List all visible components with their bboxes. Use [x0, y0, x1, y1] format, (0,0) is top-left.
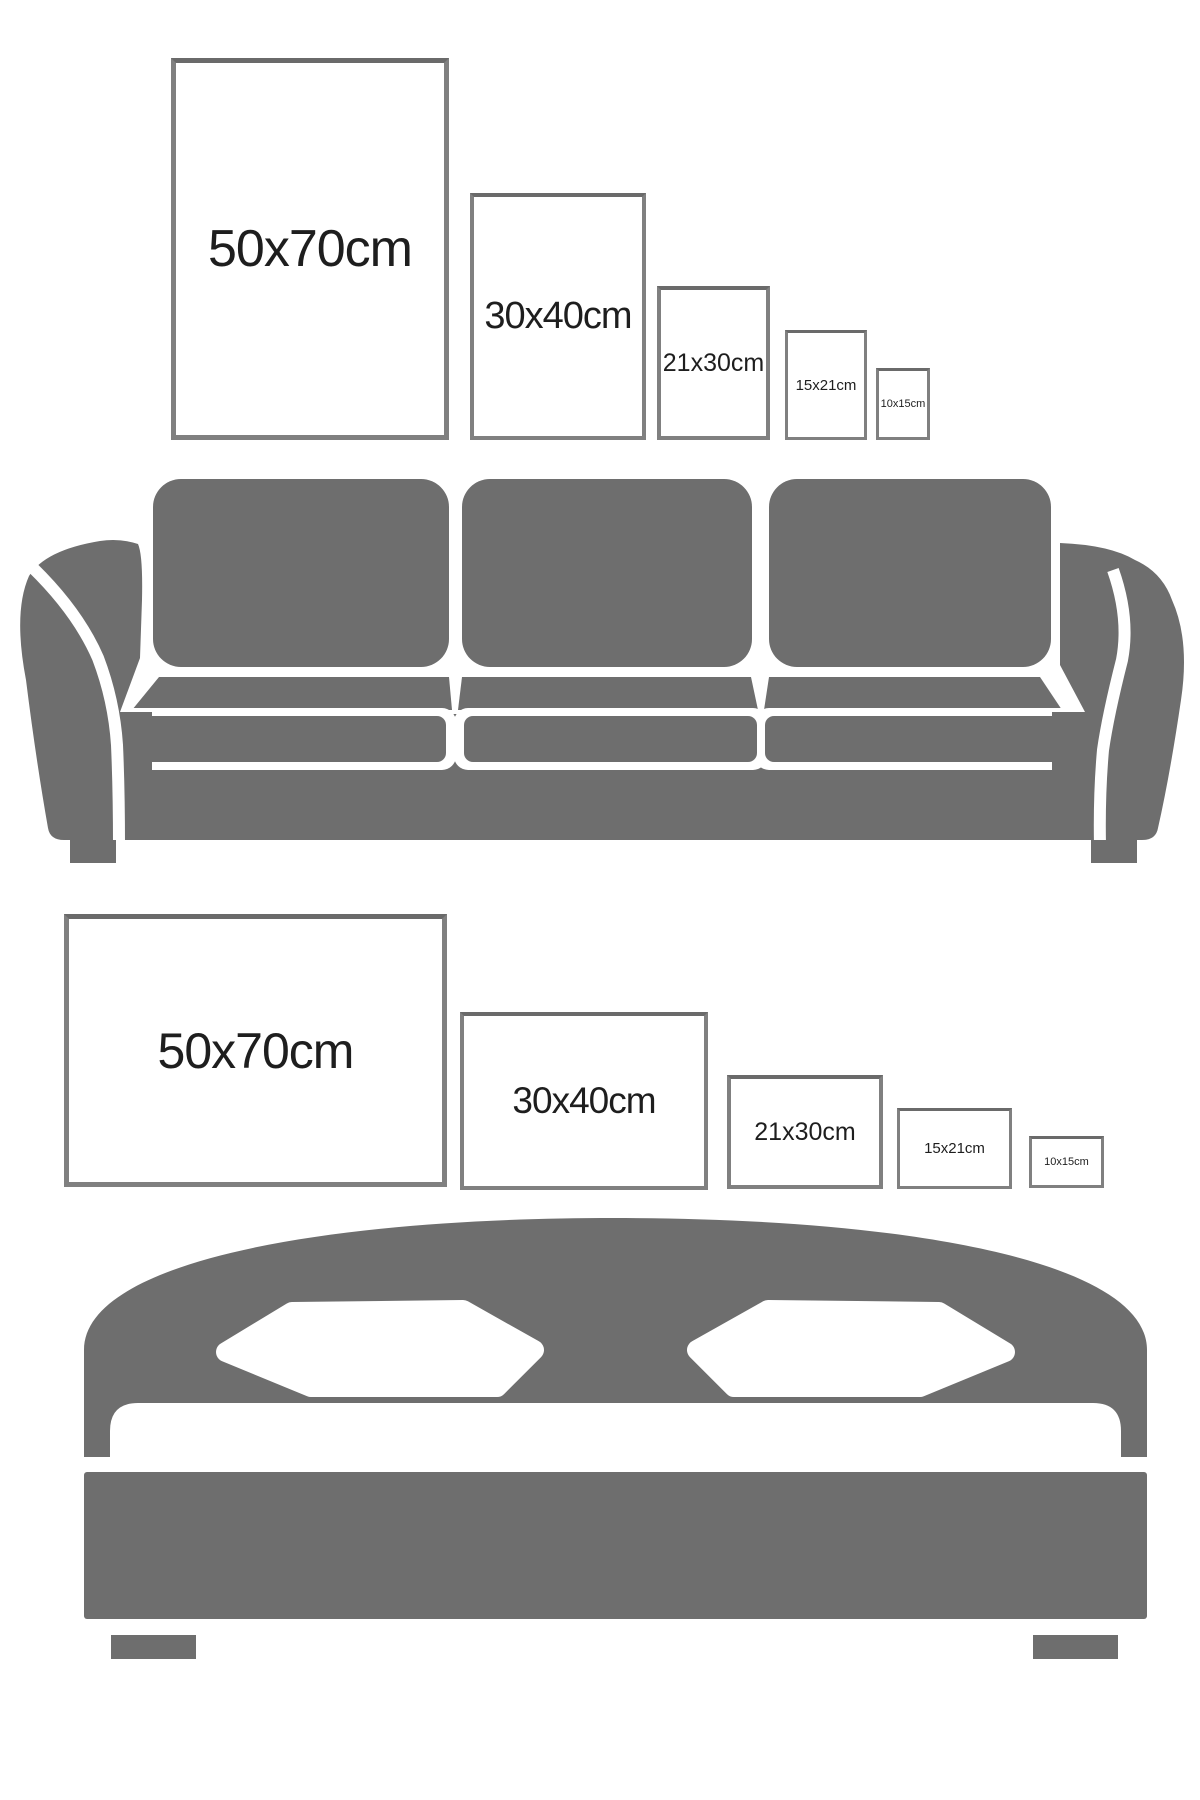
poster-size-comparison-diagram: 50x70cm 30x40cm 21x30cm 15x21cm 10x15cm … [0, 0, 1200, 1800]
size-frame-50x70-portrait: 50x70cm [171, 58, 449, 440]
size-label: 10x15cm [1044, 1156, 1089, 1168]
size-frame-50x70-landscape: 50x70cm [64, 914, 447, 1187]
size-frame-10x15-portrait: 10x15cm [876, 368, 930, 440]
sofa-leg [1091, 840, 1137, 863]
size-frame-15x21-landscape: 15x21cm [897, 1108, 1012, 1189]
bed-illustration [84, 1218, 1147, 1659]
sofa-seat-deck [458, 677, 758, 710]
sofa-armrest-left [20, 540, 152, 840]
size-label: 21x30cm [663, 349, 764, 378]
sofa-leg [70, 840, 116, 863]
bed-leg [111, 1635, 196, 1659]
bed-pillow-left [226, 1310, 534, 1387]
size-frame-21x30-portrait: 21x30cm [657, 286, 770, 440]
sofa-illustration [20, 479, 1184, 863]
sofa-back-cushion [769, 479, 1051, 667]
sofa-seat-deck [132, 677, 452, 710]
size-frame-30x40-landscape: 30x40cm [460, 1012, 708, 1190]
size-label: 30x40cm [512, 1080, 655, 1122]
size-label: 30x40cm [484, 295, 631, 338]
bed-pillow-right [697, 1310, 1005, 1387]
size-frame-21x30-landscape: 21x30cm [727, 1075, 883, 1189]
bed-base [84, 1472, 1147, 1619]
size-frame-10x15-landscape: 10x15cm [1029, 1136, 1104, 1188]
sofa-seat-cushion [115, 716, 446, 762]
size-frame-30x40-portrait: 30x40cm [470, 193, 646, 440]
size-label: 50x70cm [208, 219, 412, 279]
size-label: 50x70cm [158, 1022, 354, 1080]
size-label: 15x21cm [796, 377, 857, 394]
sofa-seat-cushion [765, 716, 1087, 762]
sofa-seat-deck [764, 677, 1062, 710]
sofa-back-cushion [153, 479, 449, 667]
size-label: 21x30cm [754, 1118, 855, 1147]
size-label: 15x21cm [924, 1140, 985, 1157]
sofa-back-cushion [462, 479, 752, 667]
size-frame-15x21-portrait: 15x21cm [785, 330, 867, 440]
sofa-seat-cushion [464, 716, 757, 762]
size-label: 10x15cm [881, 398, 926, 410]
bed-leg [1033, 1635, 1118, 1659]
